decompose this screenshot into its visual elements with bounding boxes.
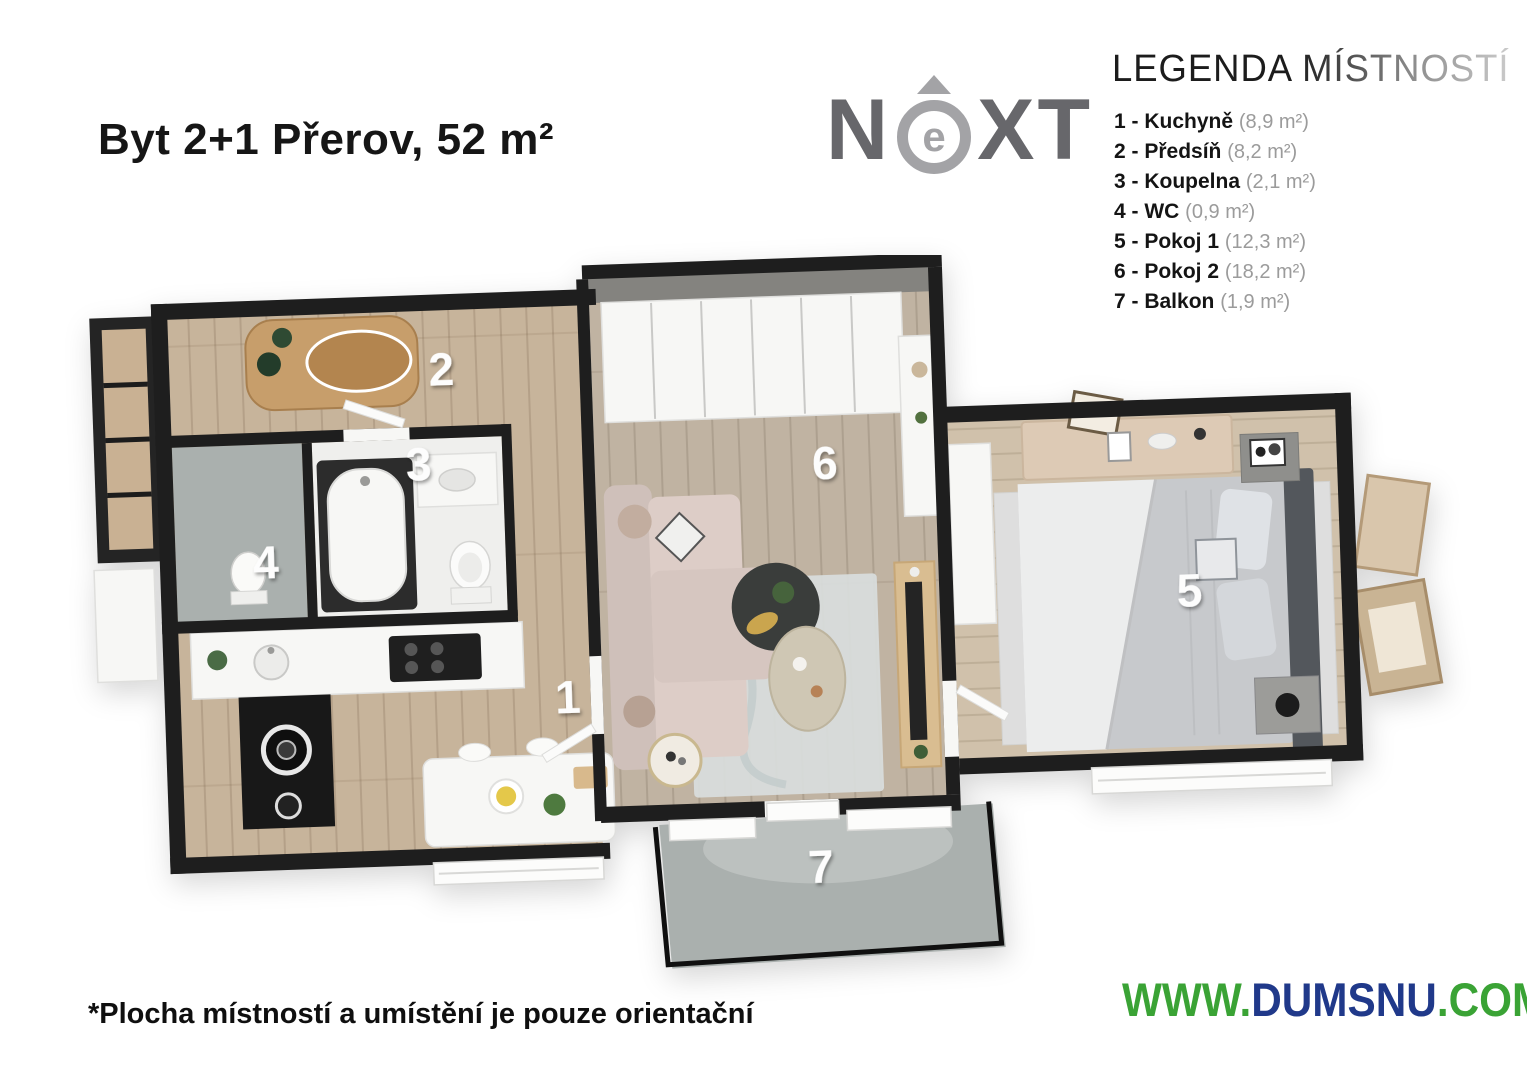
logo-letter-n: N [826, 87, 891, 173]
room-number-5: 5 [1176, 564, 1203, 617]
legend-title-word2: MÍSTNOSTÍ [1302, 48, 1509, 90]
website-url: WWW.DUMSNU.COM [1122, 972, 1527, 1027]
legend-title-word1: LEGENDA [1112, 48, 1291, 90]
cooktop [389, 633, 483, 682]
bedroom-wardrobe [948, 443, 996, 624]
room-number-4: 4 [252, 536, 280, 589]
room-number-3: 3 [405, 438, 432, 491]
logo-circle: e [897, 100, 971, 174]
page-title: Byt 2+1 Přerov, 52 m² [98, 115, 554, 165]
pillow [1215, 577, 1277, 661]
legend-item-4: 4 - WC (0,9 m²) [1114, 197, 1526, 227]
logo-arrow-icon [917, 75, 951, 94]
legend-item-3: 3 - Koupelna (2,1 m²) [1114, 167, 1526, 197]
legend-item-5: 5 - Pokoj 1 (12,3 m²) [1114, 227, 1526, 257]
logo-letter-e: e [922, 116, 945, 158]
next-logo: N e XT [826, 86, 1093, 174]
website-www: WWW. [1122, 973, 1251, 1026]
bathtub [327, 468, 408, 603]
art-frame [1355, 475, 1429, 575]
website-domain: DUMSNU [1251, 973, 1437, 1026]
website-tld: .COM [1437, 973, 1527, 1026]
floorplan-render: 1 2 3 4 5 6 7 [70, 255, 1470, 975]
legend-item-2: 2 - Předsíň (8,2 m²) [1114, 137, 1526, 167]
legend-item-1: 1 - Kuchyně (8,9 m²) [1114, 107, 1526, 137]
room-number-6: 6 [811, 437, 838, 490]
balcony-threshold [767, 801, 840, 822]
room-number-1: 1 [554, 671, 581, 724]
disclaimer-text: *Plocha místností a umístění je pouze or… [88, 998, 754, 1031]
legend-title: LEGENDA MÍSTNOSTÍ [1112, 48, 1509, 91]
room-number-2: 2 [428, 343, 455, 396]
side-table [648, 734, 702, 788]
logo-letter-xt: XT [977, 87, 1093, 173]
room-number-7: 7 [807, 840, 834, 893]
check-pillow [1196, 539, 1237, 580]
hall-bench [244, 315, 419, 411]
floorplan-page: Byt 2+1 Přerov, 52 m² N e XT LEGENDA MÍS… [0, 0, 1527, 1080]
